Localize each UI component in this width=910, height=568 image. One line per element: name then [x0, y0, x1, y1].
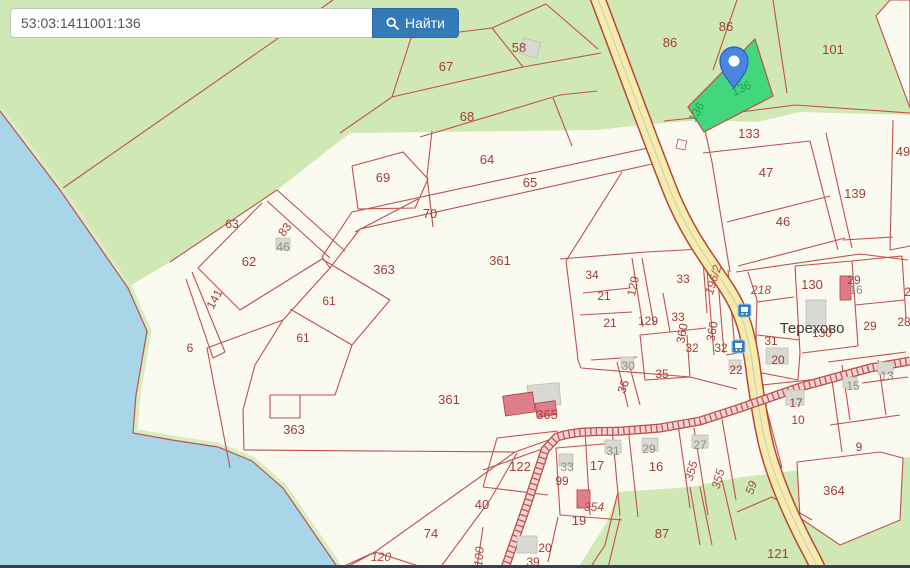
- map-label-354: 354: [584, 500, 604, 514]
- map-label-46: 46: [776, 214, 790, 229]
- map-label-16: 16: [849, 283, 863, 297]
- map-label-363: 363: [373, 262, 395, 277]
- map-label-20: 20: [538, 541, 552, 555]
- map-label-69: 69: [376, 170, 390, 185]
- map-label-122: 122: [509, 459, 531, 474]
- map-label-364: 364: [823, 483, 845, 498]
- map-label-74: 74: [424, 526, 438, 541]
- map-label-15: 15: [846, 379, 860, 393]
- map-label-363: 363: [283, 422, 305, 437]
- map-label-16: 16: [649, 459, 663, 474]
- map-label-361: 361: [438, 392, 460, 407]
- map-label-27: 27: [693, 438, 707, 452]
- map-label-120: 120: [371, 550, 391, 564]
- map-label-139: 139: [844, 186, 866, 201]
- map-label-30: 30: [621, 359, 635, 373]
- map-label-22: 22: [729, 363, 743, 377]
- map-label-33: 33: [676, 272, 690, 286]
- map-label-100: 100: [471, 546, 487, 567]
- map-label-63: 63: [225, 217, 239, 231]
- map-label-21: 21: [603, 316, 617, 330]
- map-label-19: 19: [572, 513, 586, 528]
- map-label-10: 10: [791, 413, 805, 427]
- map-label-87: 87: [655, 526, 669, 541]
- map-label-218: 218: [750, 283, 771, 297]
- map-label-21: 21: [597, 289, 611, 303]
- map-label-13: 13: [880, 369, 894, 383]
- map-label-361: 361: [489, 253, 511, 268]
- map-label-33: 33: [560, 460, 574, 474]
- map-label-17: 17: [789, 396, 803, 410]
- map-label-49: 49: [896, 144, 910, 159]
- map-label-129: 129: [638, 314, 658, 328]
- map-label-62: 62: [242, 254, 256, 269]
- map-label-29: 29: [863, 319, 877, 333]
- map-label-86: 86: [719, 19, 733, 34]
- map-label-130: 130: [801, 277, 823, 292]
- map-label-61: 61: [296, 331, 310, 345]
- map-label-130: 130: [812, 326, 832, 340]
- search-input[interactable]: [10, 8, 372, 38]
- map-label-47: 47: [759, 165, 773, 180]
- map-label-34: 34: [585, 268, 599, 282]
- map-label-29: 29: [904, 285, 910, 299]
- map-label-6: 6: [187, 341, 194, 355]
- map-canvas: 5867688686101491334746139646569706383466…: [0, 0, 910, 568]
- building-outline: [676, 139, 687, 150]
- bus-stop-icon: [738, 304, 751, 317]
- map-label-365: 365: [536, 407, 558, 422]
- search-button-label: Найти: [405, 15, 445, 31]
- map-label-58: 58: [512, 40, 526, 55]
- map-label-32: 32: [714, 341, 728, 355]
- building: [517, 536, 537, 553]
- search-button[interactable]: Найти: [372, 8, 459, 38]
- map-label-65: 65: [523, 175, 537, 190]
- map-label-33: 33: [671, 310, 685, 324]
- map-label-61: 61: [322, 294, 336, 308]
- map-label-121: 121: [767, 546, 789, 561]
- map-label-133: 133: [738, 126, 760, 141]
- map-label-86: 86: [663, 35, 677, 50]
- map-label-70: 70: [423, 206, 437, 221]
- map-label-17: 17: [590, 458, 604, 473]
- map-label-9: 9: [856, 440, 863, 454]
- search-bar: Найти: [10, 8, 459, 38]
- building-red: [503, 392, 535, 416]
- map-label-99: 99: [555, 474, 569, 488]
- map-label-40: 40: [475, 497, 489, 512]
- map-label-35: 35: [655, 367, 669, 381]
- map-label-29: 29: [642, 442, 656, 456]
- map-label-68: 68: [460, 109, 474, 124]
- map-label-46: 46: [276, 240, 290, 254]
- map-label-20: 20: [771, 353, 785, 367]
- cadastral-map[interactable]: 5867688686101491334746139646569706383466…: [0, 0, 910, 568]
- map-label-64: 64: [480, 152, 494, 167]
- map-label-67: 67: [439, 59, 453, 74]
- bus-stop-icon: [732, 340, 745, 353]
- map-label-28: 28: [897, 315, 910, 329]
- search-icon: [386, 17, 399, 30]
- map-label-101: 101: [822, 42, 844, 57]
- map-label-31: 31: [764, 334, 778, 348]
- map-label-32: 32: [685, 341, 699, 355]
- map-label-31: 31: [606, 444, 620, 458]
